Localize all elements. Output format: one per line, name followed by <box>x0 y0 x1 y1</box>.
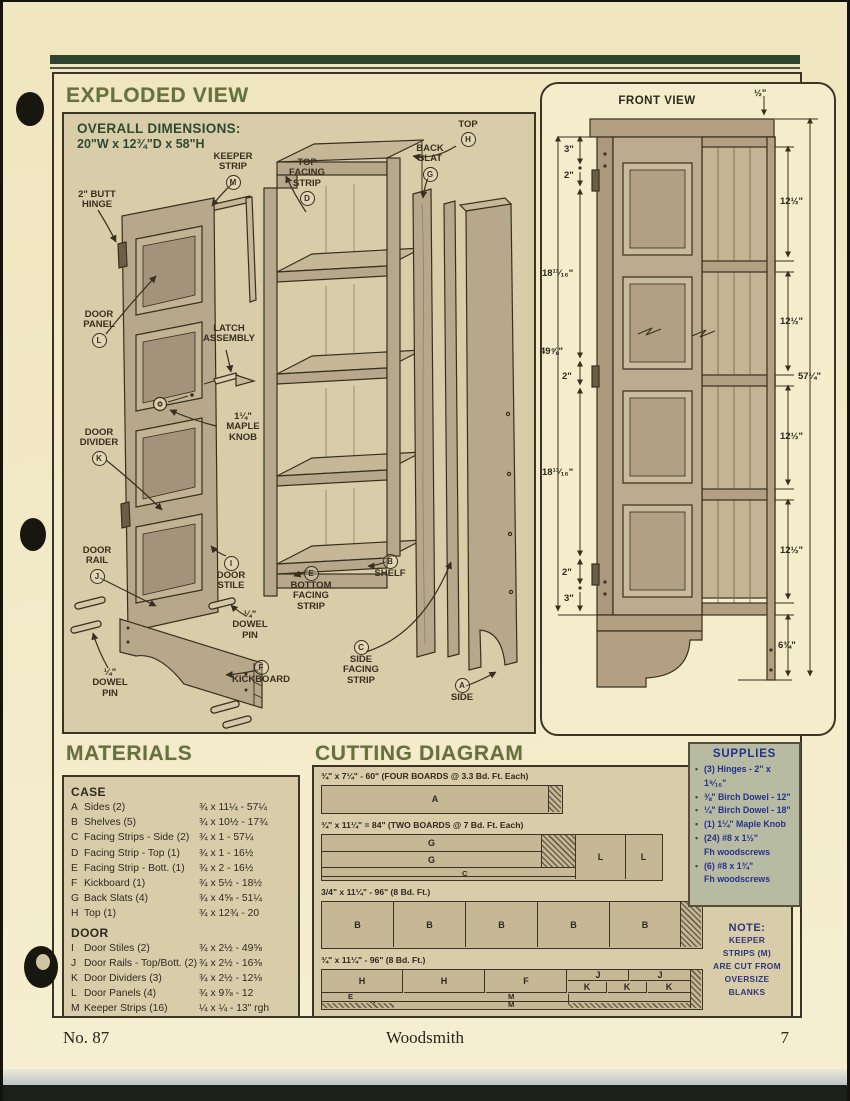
board2: G G C L L <box>321 834 663 881</box>
exploded-part-label: ¼"DOWELPIN <box>84 668 136 699</box>
supplies-item: •(6) #8 x 1¾" <box>695 860 794 874</box>
exploded-part-label: DOORDIVIDERK <box>66 428 132 466</box>
board2-part: G <box>322 853 541 868</box>
supplies-item: •(1) 1¼" Maple Knob <box>695 818 794 832</box>
materials-row: DFacing Strip - Top (1)¾ x 1 - 16½ <box>71 846 291 861</box>
board2-part: C <box>462 870 467 878</box>
materials-title: MATERIALS <box>66 742 192 766</box>
materials-row: CFacing Strips - Side (2)¾ x 1 - 57¼ <box>71 830 291 845</box>
materials-door-header: DOOR <box>71 926 291 940</box>
materials-row: MKeeper Strips (16)¼ x ¼ - 13" rgh <box>71 1001 291 1016</box>
dimension-label: 12½" <box>780 431 803 442</box>
dimension-label: 12½" <box>780 545 803 556</box>
board4-part: F <box>486 970 567 993</box>
board2-caption: ¾" x 11¼" = 84" (TWO BOARDS @ 7 Bd. Ft. … <box>321 820 523 830</box>
supplies-item: •¼" Birch Dowel - 18" <box>695 804 794 818</box>
page-number: 7 <box>781 1028 790 1048</box>
board4-part: J <box>568 970 629 981</box>
binding-hole <box>24 946 58 988</box>
exploded-part-label: BSHELF <box>362 552 418 579</box>
exploded-labels: TOPHBACKSLATGKEEPERSTRIPMTOPFACINGSTRIPD… <box>64 114 534 732</box>
board2-part: G <box>322 835 541 852</box>
materials-row: BShelves (5)¾ x 10½ - 17¾ <box>71 815 291 830</box>
board4-waste-hatch <box>568 1003 690 1008</box>
supplies-title: SUPPLIES <box>695 748 794 760</box>
part-letter-badge: C <box>354 640 369 655</box>
exploded-part-label: CSIDEFACINGSTRIP <box>332 638 390 686</box>
page-footer: No. 87 Woodsmith 7 <box>3 1028 847 1058</box>
page-bottom-shadow <box>3 1069 847 1085</box>
part-letter-badge: J <box>90 569 105 584</box>
dimension-label: 18¹³⁄₁₆" <box>542 467 573 478</box>
dimension-label: 57¼" <box>798 371 821 382</box>
board3-part: B <box>466 902 538 947</box>
board3-caption: 3/4" x 11¼" - 96" (8 Bd. Ft.) <box>321 887 430 897</box>
board1-part: A <box>322 786 548 812</box>
exploded-part-label: ¼"DOWELPIN <box>224 610 276 641</box>
materials-row: EFacing Strip - Bott. (1)¾ x 2 - 16½ <box>71 861 291 876</box>
paper: EXPLODED VIEW OVERALL DIMENSIONS: 20"W x… <box>3 2 847 1101</box>
top-green-bar <box>50 55 800 64</box>
part-letter-badge: B <box>383 554 398 569</box>
board4: H H F J J K K K E D M M <box>321 969 703 1010</box>
board4-part: K <box>568 982 607 993</box>
exploded-part-label: 1¼"MAPLEKNOB <box>214 412 272 443</box>
supplies-item: •(24) #8 x 1½" <box>695 832 794 846</box>
materials-row: LDoor Panels (4)¾ x 9⅞ - 12 <box>71 986 291 1001</box>
board4-part: M <box>508 1001 514 1009</box>
supplies-item: •⅜" Birch Dowel - 12" <box>695 791 794 805</box>
cutting-diagram-title: CUTTING DIAGRAM <box>315 742 523 766</box>
binding-hole <box>20 518 46 551</box>
board2-part: L <box>625 835 661 879</box>
exploded-view-panel: OVERALL DIMENSIONS: 20"W x 12¾"D x 58"H <box>62 112 536 734</box>
supplies-panel: SUPPLIES •(3) Hinges - 2" x 1⁹⁄₁₆"•⅜" Bi… <box>688 742 801 907</box>
part-letter-badge: G <box>423 167 438 182</box>
exploded-part-label: DOORPANELL <box>70 310 128 348</box>
board4-part: J <box>630 970 690 981</box>
board4-strip-line <box>322 1001 690 1002</box>
binding-hole <box>16 92 44 126</box>
part-letter-badge: A <box>455 678 470 693</box>
dimension-label: 2" <box>564 170 574 181</box>
note-body: KEEPER STRIPS (M) ARE CUT FROM OVERSIZE … <box>697 934 797 999</box>
magazine-name: Woodsmith <box>3 1028 847 1048</box>
board3-part: B <box>394 902 466 947</box>
part-letter-badge: L <box>92 333 107 348</box>
materials-row: GBack Slats (4)¾ x 4⅝ - 51¼ <box>71 891 291 906</box>
dimension-label: 2" <box>562 567 572 578</box>
exploded-view-title: EXPLODED VIEW <box>66 84 249 108</box>
materials-case-rows: ASides (2)¾ x 11¼ - 57¼BShelves (5)¾ x 1… <box>71 800 291 922</box>
dimension-label: 2" <box>562 371 572 382</box>
board3-part: B <box>538 902 610 947</box>
materials-row: HTop (1)¾ x 12¾ - 20 <box>71 906 291 921</box>
materials-case-header: CASE <box>71 785 291 799</box>
board4-part: H <box>404 970 485 993</box>
magazine-page: EXPLODED VIEW OVERALL DIMENSIONS: 20"W x… <box>0 0 850 1101</box>
dimension-label: 49⅝" <box>540 346 563 357</box>
note-block: NOTE: KEEPER STRIPS (M) ARE CUT FROM OVE… <box>697 922 797 999</box>
board3: B B B B B <box>321 901 703 949</box>
exploded-part-label: KEEPERSTRIPM <box>198 152 268 190</box>
board4-part: K <box>648 982 690 993</box>
part-letter-badge: E <box>304 566 319 581</box>
board1: A <box>321 785 563 814</box>
board2-waste-hatch <box>541 835 575 868</box>
dimension-label: 6¾" <box>778 640 796 651</box>
exploded-part-label: BACKSLATG <box>400 144 460 182</box>
board1-caption: ¾" x 7¼" - 60" (FOUR BOARDS @ 3.3 Bd. Ft… <box>321 771 528 781</box>
exploded-part-label: EBOTTOMFACINGSTRIP <box>278 564 344 612</box>
dimension-label: 12½" <box>780 196 803 207</box>
supplies-item: Fh woodscrews <box>695 846 794 860</box>
dimension-label: 12½" <box>780 316 803 327</box>
page-bottom-edge <box>3 1085 847 1101</box>
dimension-label: 3" <box>564 144 574 155</box>
supplies-item: Fh woodscrews <box>695 873 794 887</box>
top-thin-rule <box>50 67 800 69</box>
materials-row: KDoor Dividers (3)¾ x 2½ - 12⅛ <box>71 971 291 986</box>
materials-row: JDoor Rails - Top/Bott. (2)¾ x 2½ - 16⅜ <box>71 956 291 971</box>
exploded-part-label: ASIDE <box>438 676 486 703</box>
part-letter-badge: F <box>254 660 269 675</box>
materials-row: IDoor Stiles (2)¾ x 2½ - 49⅝ <box>71 941 291 956</box>
part-letter-badge: M <box>226 175 241 190</box>
front-view-panel: FRONT VIEW <box>540 82 836 736</box>
part-letter-badge: I <box>224 556 239 571</box>
exploded-part-label: TOPFACINGSTRIPD <box>274 158 340 206</box>
board2-part: L <box>575 835 625 879</box>
materials-panel: CASE ASides (2)¾ x 11¼ - 57¼BShelves (5)… <box>62 775 300 1018</box>
materials-door-rows: IDoor Stiles (2)¾ x 2½ - 49⅝JDoor Rails … <box>71 941 291 1017</box>
supplies-list: •(3) Hinges - 2" x 1⁹⁄₁₆"•⅜" Birch Dowel… <box>695 763 794 887</box>
dimension-label: 3" <box>564 593 574 604</box>
board1-waste-hatch <box>548 786 561 812</box>
exploded-part-label: 2" BUTTHINGE <box>68 190 126 211</box>
part-letter-badge: D <box>300 191 315 206</box>
exploded-part-label: DOORRAILJ <box>70 546 124 584</box>
board2-strip-line <box>322 876 575 877</box>
exploded-part-label: IDOORSTILE <box>202 554 260 592</box>
exploded-part-label: LATCHASSEMBLY <box>190 324 268 345</box>
dimension-label: 18¹³⁄₁₆" <box>542 268 573 279</box>
materials-row: FKickboard (1)¾ x 5½ - 18½ <box>71 876 291 891</box>
supplies-item: •(3) Hinges - 2" x 1⁹⁄₁₆" <box>695 763 794 791</box>
board4-part: E <box>348 993 353 1001</box>
board3-part: B <box>322 902 394 947</box>
board4-caption: ¾" x 11¼" - 96" (8 Bd. Ft.) <box>321 955 425 965</box>
materials-row: ASides (2)¾ x 11¼ - 57¼ <box>71 800 291 815</box>
part-letter-badge: H <box>461 132 476 147</box>
dimension-label: ½" <box>754 88 766 99</box>
part-letter-badge: K <box>92 451 107 466</box>
board4-part: H <box>322 970 403 993</box>
note-title: NOTE: <box>697 922 797 934</box>
board3-part: B <box>610 902 681 947</box>
exploded-part-label: FKICKBOARD <box>216 658 306 685</box>
board4-waste-hatch <box>322 1003 394 1008</box>
binding-hole-highlight <box>36 954 50 970</box>
front-view-dimensions: ½"3"2"18¹³⁄₁₆"49⅝"2"18¹³⁄₁₆"2"3"12½"12½"… <box>542 84 834 734</box>
board4-part: K <box>608 982 647 993</box>
